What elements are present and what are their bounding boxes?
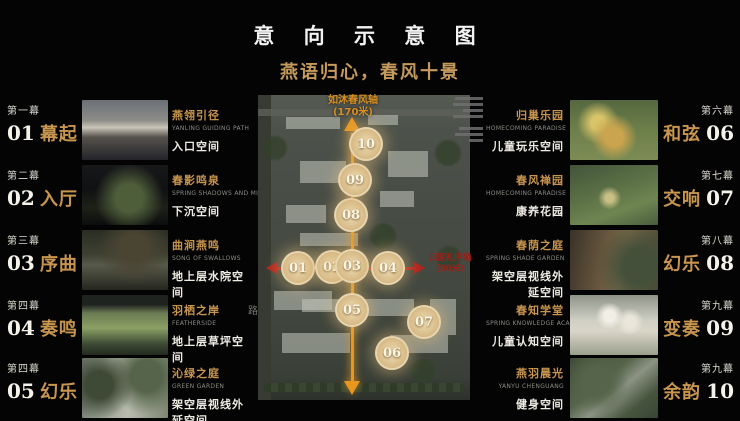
- page-subtitle: 燕语归心，春风十景: [0, 58, 740, 84]
- slide: 意 向 示 意 图 燕语归心，春风十景 第一幕 01 幕起 燕翎引径 YANLI…: [0, 0, 740, 421]
- map-trees: [262, 135, 288, 161]
- act-label: 第七幕: [660, 167, 734, 182]
- vertical-axis-label: 如沐春风轴 (170米): [278, 95, 428, 119]
- map-trees: [408, 359, 438, 383]
- thumbnail-photo-shade-garden: [570, 230, 658, 290]
- legend-line: [455, 97, 483, 100]
- site-plan-map: 如沐春风轴 (170米) 归家礼序轴 (80米) 路 01 02 03 04 0…: [258, 95, 470, 400]
- map-hedge: [264, 383, 464, 392]
- map-building: [388, 151, 428, 177]
- legend-line: [463, 109, 483, 112]
- feature-name: 春荫之庭: [486, 237, 564, 253]
- feature-block: 春荫之庭 SPRING SHADE GARDEN 架空层视线外延空间: [486, 237, 564, 300]
- map-building: [362, 299, 414, 316]
- act-title: 余韵 10: [660, 378, 734, 404]
- feature-name: 春风禅园: [486, 172, 564, 188]
- act-label: 第六幕: [660, 102, 734, 117]
- thumbnail-photo-playground: [570, 100, 658, 160]
- map-marker-07[interactable]: 07: [407, 305, 441, 339]
- horizontal-axis-label: 归家礼序轴 (80米): [424, 253, 476, 275]
- map-marker-06[interactable]: 06: [375, 336, 409, 370]
- act-block: 第七幕 交响 07: [660, 167, 734, 211]
- feature-block: 归巢乐园 HOMECOMING PARADISE 儿童玩乐空间: [486, 107, 564, 154]
- map-trees: [368, 223, 398, 249]
- act-block: 第六幕 和弦 06: [660, 102, 734, 146]
- legend-line: [459, 127, 483, 130]
- feature-name-en: YANYU CHENGUANG: [486, 383, 564, 390]
- map-marker-03[interactable]: 03: [335, 249, 369, 283]
- act-label: 第九幕: [660, 360, 734, 375]
- legend-line: [469, 139, 483, 142]
- axis-arrow-down-icon: [344, 381, 360, 395]
- feature-block: 春知学堂 SPRING KNOWLEDGE ACADEMY 儿童认知空间: [486, 302, 564, 349]
- act-block: 第九幕 余韵 10: [660, 360, 734, 404]
- legend-line: [453, 103, 483, 106]
- map-marker-09[interactable]: 09: [338, 163, 372, 197]
- map-building: [380, 191, 414, 207]
- thumbnail-photo-knowledge-academy: [570, 295, 658, 355]
- act-title: 和弦 06: [660, 120, 734, 146]
- page-title: 意 向 示 意 图: [0, 20, 740, 50]
- feature-name-en: HOMECOMING PARADISE: [486, 125, 564, 132]
- feature-name: 归巢乐园: [486, 107, 564, 123]
- act-title: 交响 07: [660, 185, 734, 211]
- thumbnail-photo-zen-garden: [570, 165, 658, 225]
- space-name: 儿童认知空间: [486, 333, 564, 349]
- act-title: 变奏 09: [660, 315, 734, 341]
- map-building: [300, 233, 358, 246]
- space-name: 康养花园: [486, 203, 564, 219]
- feature-name-en: SPRING SHADE GARDEN: [486, 255, 564, 262]
- map-building: [282, 333, 350, 353]
- legend-line: [455, 133, 483, 136]
- map-marker-01[interactable]: 01: [281, 251, 315, 285]
- road-label: 路: [248, 302, 258, 317]
- act-block: 第八幕 幻乐 08: [660, 232, 734, 276]
- feature-name: 春知学堂: [486, 302, 564, 318]
- act-title: 幻乐 08: [660, 250, 734, 276]
- map-marker-08[interactable]: 08: [334, 198, 368, 232]
- thumbnail-photo-fitness-garden: [570, 358, 658, 418]
- act-label: 第九幕: [660, 297, 734, 312]
- feature-block: 燕羽晨光 YANYU CHENGUANG 健身空间: [486, 365, 564, 412]
- map-marker-05[interactable]: 05: [335, 293, 369, 327]
- space-name: 儿童玩乐空间: [486, 138, 564, 154]
- act-label: 第八幕: [660, 232, 734, 247]
- feature-name: 燕羽晨光: [486, 365, 564, 381]
- feature-name-en: HOMECOMING PARADISE: [486, 190, 564, 197]
- map-trees: [434, 139, 462, 167]
- map-marker-10[interactable]: 10: [349, 127, 383, 161]
- act-block: 第九幕 变奏 09: [660, 297, 734, 341]
- map-marker-04[interactable]: 04: [371, 251, 405, 285]
- map-building: [286, 205, 326, 223]
- space-name: 健身空间: [486, 396, 564, 412]
- feature-name-en: SPRING KNOWLEDGE ACADEMY: [486, 320, 564, 327]
- feature-block: 春风禅园 HOMECOMING PARADISE 康养花园: [486, 172, 564, 219]
- legend-line: [453, 115, 483, 118]
